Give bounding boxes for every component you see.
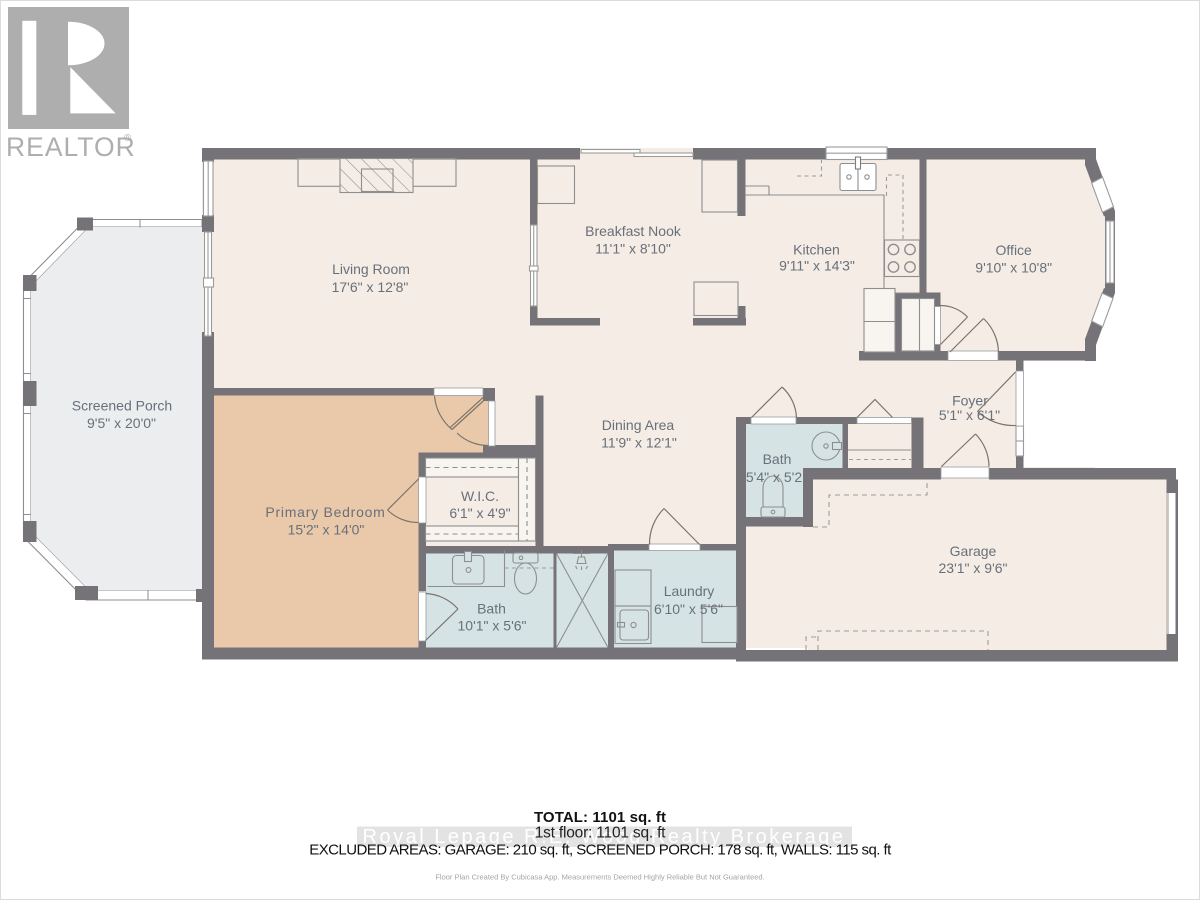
svg-text:Screened Porch: Screened Porch [72, 398, 172, 414]
svg-text:Dining Area: Dining Area [602, 417, 675, 433]
svg-text:Bath: Bath [763, 451, 792, 467]
svg-text:Bath: Bath [477, 601, 506, 617]
svg-text:17'6" x 12'8": 17'6" x 12'8" [332, 279, 409, 295]
svg-text:5'4" x 5'2: 5'4" x 5'2 [746, 469, 802, 485]
svg-text:REALTOR: REALTOR [6, 132, 136, 162]
svg-text:W.I.C.: W.I.C. [461, 488, 499, 504]
svg-text:TOTAL: 1101 sq. ft: TOTAL: 1101 sq. ft [534, 809, 666, 826]
svg-text:Primary Bedroom: Primary Bedroom [265, 504, 385, 520]
svg-text:9'11" x 14'3": 9'11" x 14'3" [779, 258, 855, 274]
svg-text:Floor Plan Created By Cubicasa: Floor Plan Created By Cubicasa App. Meas… [435, 873, 764, 882]
svg-text:Kitchen: Kitchen [793, 242, 840, 258]
svg-text:Laundry: Laundry [664, 583, 715, 599]
svg-text:9'5" x 20'0": 9'5" x 20'0" [87, 415, 156, 431]
svg-text:Garage: Garage [950, 543, 997, 559]
svg-text:6'10" x 5'6": 6'10" x 5'6" [654, 601, 723, 617]
svg-text:11'9" x 12'1": 11'9" x 12'1" [601, 435, 677, 451]
svg-text:23'1" x 9'6": 23'1" x 9'6" [939, 560, 1008, 576]
svg-text:6'1" x 4'9": 6'1" x 4'9" [449, 505, 510, 521]
svg-text:®: ® [124, 133, 132, 144]
svg-text:Office: Office [996, 242, 1033, 258]
svg-text:10'1" x 5'6": 10'1" x 5'6" [458, 618, 527, 634]
svg-text:EXCLUDED AREAS: GARAGE: 210 sq: EXCLUDED AREAS: GARAGE: 210 sq. ft, SCRE… [309, 842, 892, 859]
svg-text:9'10" x 10'8": 9'10" x 10'8" [975, 260, 1052, 276]
svg-text:11'1" x 8'10": 11'1" x 8'10" [595, 241, 671, 257]
svg-text:1st floor: 1101 sq. ft: 1st floor: 1101 sq. ft [535, 825, 666, 842]
svg-text:5'1" x 6'1": 5'1" x 6'1" [939, 407, 1000, 423]
svg-text:15'2" x 14'0": 15'2" x 14'0" [288, 522, 365, 538]
svg-text:Breakfast Nook: Breakfast Nook [585, 223, 682, 239]
svg-text:Living Room: Living Room [332, 261, 410, 277]
